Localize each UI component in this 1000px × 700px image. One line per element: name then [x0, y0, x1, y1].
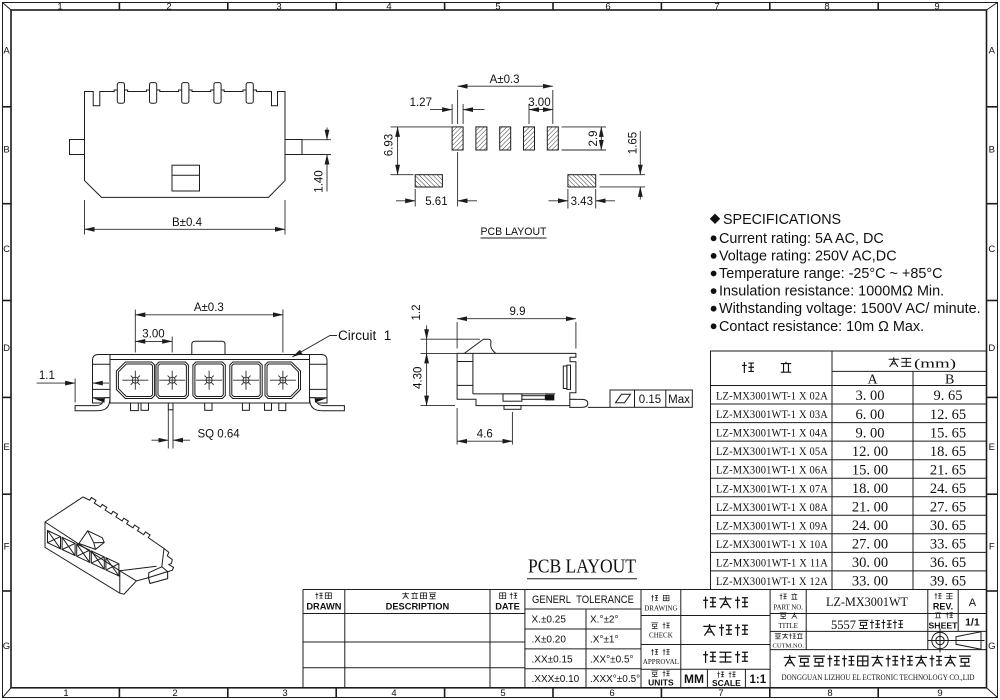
svg-text:SQ 0.64: SQ 0.64 — [198, 429, 241, 441]
svg-text:LZ-MX3001WT-1 X 04A: LZ-MX3001WT-1 X 04A — [716, 428, 828, 440]
svg-text:3: 3 — [276, 2, 281, 13]
svg-text:6.93: 6.93 — [384, 134, 396, 156]
svg-text:LZ-MX3001WT-1 X 02A: LZ-MX3001WT-1 X 02A — [716, 391, 828, 403]
svg-text:DESCRIPTION: DESCRIPTION — [386, 602, 450, 612]
svg-text:TITLE: TITLE — [778, 622, 797, 630]
svg-text:A±0.3: A±0.3 — [490, 74, 520, 86]
svg-text:A±0.3: A±0.3 — [194, 302, 224, 314]
svg-text:15. 65: 15. 65 — [930, 425, 966, 441]
svg-text:APPROVAL: APPROVAL — [643, 658, 679, 666]
svg-text:39. 65: 39. 65 — [930, 574, 966, 590]
svg-text:Current rating: 5A AC, DC: Current rating: 5A AC, DC — [719, 231, 884, 247]
svg-text:LZ-MX3001WT-1 X 07A: LZ-MX3001WT-1 X 07A — [716, 483, 828, 495]
svg-text:Insulation resistance: 1000MΩ: Insulation resistance: 1000MΩ Min. — [719, 284, 944, 300]
svg-text:F: F — [4, 542, 10, 553]
svg-text:C: C — [3, 244, 10, 255]
svg-text:1.2: 1.2 — [411, 305, 423, 321]
svg-text:18. 00: 18. 00 — [852, 481, 888, 497]
svg-text:27. 00: 27. 00 — [852, 537, 888, 553]
svg-text:9. 00: 9. 00 — [856, 425, 885, 441]
svg-text:1.65: 1.65 — [627, 132, 639, 154]
svg-text:X.±0.25: X.±0.25 — [532, 615, 567, 626]
svg-text:6: 6 — [605, 2, 610, 13]
svg-text:F: F — [989, 542, 995, 553]
svg-text:.XXX±0.10: .XXX±0.10 — [532, 674, 580, 685]
svg-text:6: 6 — [609, 688, 614, 699]
svg-text:B±0.4: B±0.4 — [172, 217, 203, 229]
svg-text:PCB LAYOUT: PCB LAYOUT — [481, 226, 547, 238]
svg-text:2.9: 2.9 — [588, 131, 600, 147]
svg-text:.X°±1°: .X°±1° — [590, 635, 619, 646]
svg-text:LZ-MX3001WT-1 X 10A: LZ-MX3001WT-1 X 10A — [716, 539, 828, 551]
svg-text:12. 00: 12. 00 — [852, 444, 888, 460]
svg-text:7: 7 — [718, 688, 723, 699]
svg-text:DRAWING: DRAWING — [644, 605, 677, 613]
svg-text:4: 4 — [391, 688, 396, 699]
svg-text:1:1: 1:1 — [749, 674, 766, 686]
svg-text:4.6: 4.6 — [477, 428, 493, 440]
svg-text:Max: Max — [668, 394, 690, 406]
svg-text:GENERL TOLERANCE: GENERL TOLERANCE — [532, 594, 634, 606]
svg-text:3.43: 3.43 — [571, 196, 593, 208]
svg-text:2: 2 — [172, 688, 177, 699]
svg-text:21. 00: 21. 00 — [852, 500, 888, 516]
svg-text:9.9: 9.9 — [510, 306, 526, 318]
svg-text:12. 65: 12. 65 — [930, 407, 966, 423]
svg-text:4.30: 4.30 — [413, 367, 425, 389]
svg-text:2: 2 — [166, 2, 171, 13]
svg-text:1/1: 1/1 — [965, 617, 980, 629]
svg-text:30. 00: 30. 00 — [852, 555, 888, 571]
svg-text:D: D — [3, 343, 10, 354]
svg-text:DATE: DATE — [495, 602, 520, 612]
svg-text:DRAWN: DRAWN — [306, 602, 341, 612]
svg-text:SHEET: SHEET — [929, 620, 959, 630]
svg-text:9: 9 — [937, 688, 942, 699]
svg-text:18. 65: 18. 65 — [930, 444, 966, 460]
svg-text:1.27: 1.27 — [410, 97, 432, 109]
svg-text:B: B — [989, 145, 995, 156]
svg-text:3.00: 3.00 — [142, 329, 164, 341]
svg-text:6. 00: 6. 00 — [856, 407, 885, 423]
svg-text:B: B — [3, 145, 9, 156]
svg-text:LZ-MX3001WT-1 X 05A: LZ-MX3001WT-1 X 05A — [716, 446, 828, 458]
svg-text:Contact resistance: 10m Ω Max.: Contact resistance: 10m Ω Max. — [719, 319, 924, 335]
svg-text:A: A — [867, 372, 878, 387]
svg-text:E: E — [989, 442, 995, 453]
svg-text:A: A — [989, 46, 996, 57]
svg-text:1: 1 — [57, 2, 62, 13]
svg-text:PCB LAYOUT: PCB LAYOUT — [528, 556, 636, 578]
svg-text:Withstanding voltage: 1500V AC: Withstanding voltage: 1500V AC/ minute. — [719, 301, 981, 317]
svg-text:.X±0.20: .X±0.20 — [532, 635, 567, 646]
svg-text:1: 1 — [63, 688, 68, 699]
svg-text:REV.: REV. — [933, 602, 953, 612]
svg-text:5: 5 — [495, 2, 500, 13]
svg-text:CUTM.NO.: CUTM.NO. — [772, 643, 804, 650]
svg-text:CHECK: CHECK — [649, 632, 673, 640]
svg-text:A: A — [969, 597, 977, 609]
svg-text:8: 8 — [827, 688, 832, 699]
svg-text:21. 65: 21. 65 — [930, 462, 966, 478]
svg-text:8: 8 — [824, 2, 829, 13]
svg-text:Circuit 1: Circuit 1 — [338, 328, 391, 343]
svg-text:24. 65: 24. 65 — [930, 481, 966, 497]
svg-text:33. 00: 33. 00 — [852, 574, 888, 590]
svg-text:MM: MM — [684, 672, 704, 686]
svg-text:UNITS: UNITS — [648, 678, 674, 688]
svg-text:36. 65: 36. 65 — [930, 555, 966, 571]
svg-text:15. 00: 15. 00 — [852, 462, 888, 478]
svg-text:0.15: 0.15 — [639, 394, 661, 406]
svg-text:27. 65: 27. 65 — [930, 500, 966, 516]
svg-text:Temperature range: -25°C ~ +85: Temperature range: -25°C ~ +85°C — [719, 266, 943, 282]
svg-text:.XXX°±0.5°: .XXX°±0.5° — [590, 674, 640, 685]
svg-text:3: 3 — [282, 688, 287, 699]
svg-text:.XX°±0.5°: .XX°±0.5° — [590, 654, 634, 665]
svg-text:LZ-MX3001WT: LZ-MX3001WT — [826, 594, 908, 609]
svg-text:E: E — [3, 442, 9, 453]
svg-text:LZ-MX3001WT-1 X 06A: LZ-MX3001WT-1 X 06A — [716, 465, 828, 477]
svg-text:30. 65: 30. 65 — [930, 518, 966, 534]
svg-text:9: 9 — [934, 2, 939, 13]
svg-text:LZ-MX3001WT-1 X 11A: LZ-MX3001WT-1 X 11A — [716, 557, 828, 569]
svg-text:SCALE: SCALE — [712, 678, 741, 688]
svg-text:LZ-MX3001WT-1 X 12A: LZ-MX3001WT-1 X 12A — [716, 576, 828, 588]
svg-text:B: B — [945, 372, 954, 387]
svg-text:5: 5 — [500, 688, 505, 699]
svg-text:5.61: 5.61 — [425, 196, 447, 208]
svg-text:5557: 5557 — [831, 618, 856, 632]
svg-text:Voltage rating: 250V AC,DC: Voltage rating: 250V AC,DC — [719, 248, 897, 264]
svg-text:4: 4 — [386, 2, 391, 13]
svg-text:C: C — [988, 244, 995, 255]
svg-text:3.00: 3.00 — [528, 97, 550, 109]
svg-text:X.°±2°: X.°±2° — [590, 615, 619, 626]
svg-text:A: A — [3, 46, 10, 57]
svg-text:G: G — [988, 641, 995, 652]
svg-text:D: D — [988, 343, 995, 354]
svg-text:9. 65: 9. 65 — [934, 388, 963, 404]
svg-text:1.40: 1.40 — [314, 170, 326, 192]
svg-text:LZ-MX3001WT-1 X 09A: LZ-MX3001WT-1 X 09A — [716, 520, 828, 532]
svg-text:1.1: 1.1 — [39, 370, 55, 382]
svg-text:.XX±0.15: .XX±0.15 — [532, 654, 574, 665]
svg-text:7: 7 — [714, 2, 719, 13]
svg-text:LZ-MX3001WT-1 X 03A: LZ-MX3001WT-1 X 03A — [716, 409, 828, 421]
svg-text:G: G — [3, 641, 10, 652]
svg-text:(mm): (mm) — [914, 355, 956, 370]
svg-text:SPECIFICATIONS: SPECIFICATIONS — [723, 212, 841, 228]
svg-text:3. 00: 3. 00 — [856, 388, 885, 404]
svg-text:33. 65: 33. 65 — [930, 537, 966, 553]
svg-text:DONGGUAN LIZHOU EL ECTRONIC TE: DONGGUAN LIZHOU EL ECTRONIC TECHNOLOGY C… — [782, 672, 975, 682]
svg-text:PART NO.: PART NO. — [773, 605, 803, 612]
svg-text:LZ-MX3001WT-1 X 08A: LZ-MX3001WT-1 X 08A — [716, 502, 828, 514]
svg-text:24. 00: 24. 00 — [852, 518, 888, 534]
